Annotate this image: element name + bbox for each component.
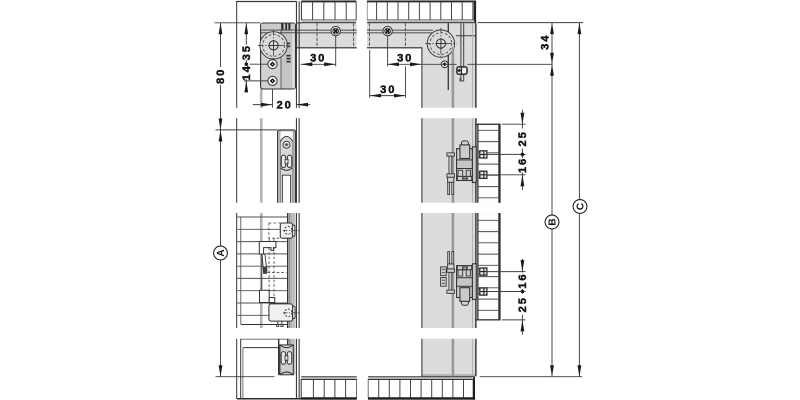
svg-text:C: C (576, 203, 587, 210)
svg-text:34: 34 (540, 34, 552, 50)
svg-text:25: 25 (517, 296, 529, 312)
svg-text:30: 30 (380, 84, 396, 96)
svg-text:25: 25 (517, 130, 529, 146)
svg-text:80: 80 (215, 68, 227, 84)
svg-text:35: 35 (241, 44, 253, 60)
svg-text:14: 14 (241, 64, 253, 80)
svg-text:16: 16 (517, 157, 529, 173)
svg-text:B: B (548, 218, 559, 225)
svg-text:16: 16 (517, 272, 529, 288)
svg-text:30: 30 (397, 52, 413, 64)
svg-text:A: A (216, 249, 227, 256)
svg-text:20: 20 (276, 100, 292, 112)
svg-text:30: 30 (310, 52, 326, 64)
